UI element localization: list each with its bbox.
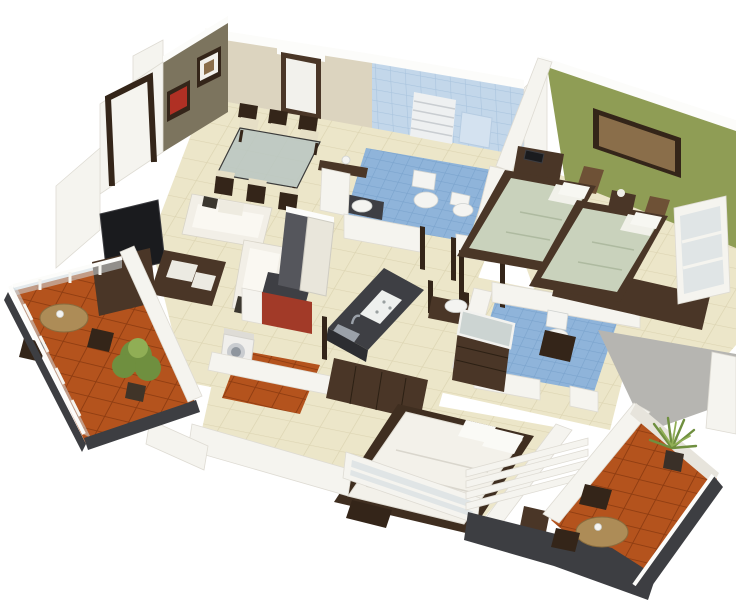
inset-speck-3 [375, 310, 378, 313]
inset-speck-2 [388, 306, 391, 309]
window-blind [286, 58, 316, 114]
floor-plan-svg [0, 0, 736, 613]
inset-speck-1 [382, 300, 385, 303]
washer-door-glass [231, 347, 241, 357]
kettle [342, 156, 350, 164]
bidet-bowl [453, 204, 473, 217]
toilet2-tank [546, 310, 568, 330]
toilet-bowl [414, 192, 438, 208]
toilet-tank [412, 170, 436, 190]
kitchen-cabinet-white [242, 288, 262, 324]
balcony1-teapot [57, 311, 64, 318]
balcony2-teapot [595, 524, 602, 531]
wall-niche [459, 112, 492, 148]
right-window-glass [680, 206, 724, 294]
nightstand-lamp [617, 189, 625, 197]
balcony1-foliage-2 [112, 354, 136, 378]
entry-left-wall [56, 148, 100, 268]
vanity-basin [352, 200, 372, 212]
service-cabinet [320, 168, 350, 216]
floor-plan-image [0, 0, 736, 613]
balcony1-foliage-light [128, 338, 148, 358]
balcony1-table [40, 304, 88, 332]
balcony1-foliage-3 [135, 355, 161, 381]
balcony2-table [576, 517, 628, 547]
